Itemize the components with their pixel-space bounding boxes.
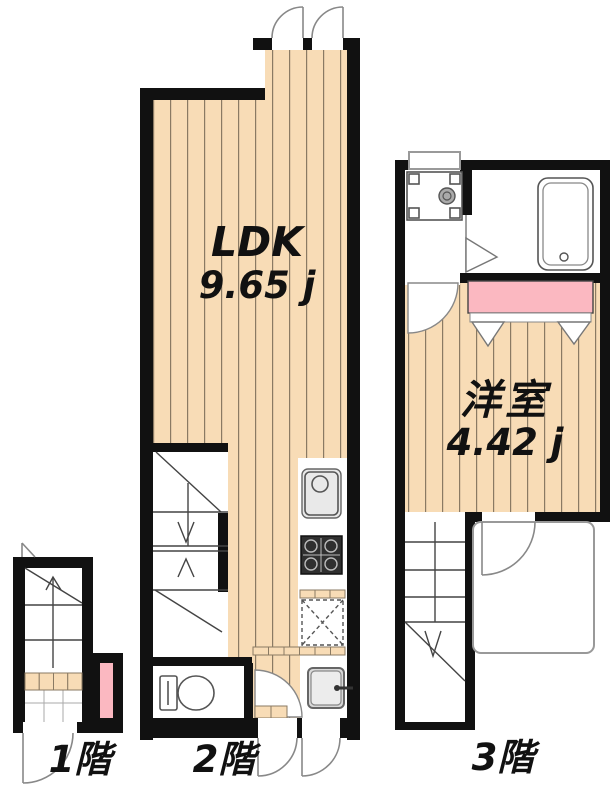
toilet — [160, 676, 214, 710]
upper-door-flap — [22, 543, 35, 557]
gas-stove — [301, 536, 342, 574]
floor-2-label: 2階 — [193, 738, 262, 781]
side-window — [253, 50, 265, 88]
ldk-label: LDK — [211, 218, 306, 266]
entrance-step-tiles — [25, 673, 82, 690]
floor-plan-page: LDK 9.65 j 2階 — [0, 0, 615, 800]
entrance-door-opening — [23, 722, 77, 733]
entry-door-arcs-top — [272, 7, 343, 38]
rear-door-arcs-bottom — [258, 738, 340, 776]
floor-3-plan: 洋室 4.42 j 3階 — [395, 152, 610, 779]
floor-1-plan: 1階 — [13, 543, 123, 783]
balcony — [473, 522, 594, 653]
stair-room-2f — [153, 452, 228, 657]
floor-1-label: 1階 — [49, 738, 118, 781]
floor-plan-drawing: LDK 9.65 j 2階 — [0, 0, 615, 800]
yoshitsu-label: 洋室 — [460, 376, 552, 424]
yoshitsu-size: 4.42 j — [446, 421, 565, 464]
washing-machine-pan — [407, 172, 462, 220]
pink-shelf — [100, 663, 113, 718]
ldk-size: 9.65 j — [199, 264, 317, 307]
entrance-area — [25, 690, 82, 722]
laundry-window — [409, 152, 460, 169]
pink-closet — [468, 281, 593, 313]
kitchen-sink — [302, 469, 341, 518]
bathtub — [538, 178, 593, 270]
floor-2-plan: LDK 9.65 j 2階 — [140, 7, 360, 781]
floor-3-label: 3階 — [472, 736, 541, 779]
